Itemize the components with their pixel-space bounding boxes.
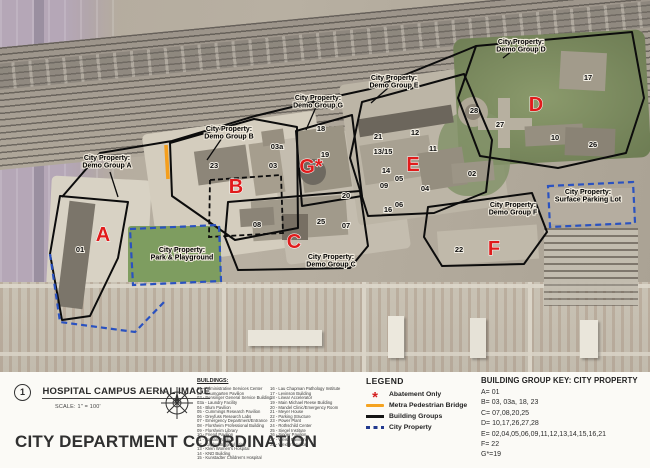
group-key-entry: G*=19 [481, 450, 646, 460]
building-groups-line-icon [366, 415, 384, 418]
drawing-number-bubble: 1 [14, 384, 31, 401]
city-property-area-label: City Property:Demo Group D [496, 39, 545, 54]
building-number-label: 27 [496, 120, 504, 129]
building-number-label: 07 [342, 221, 350, 230]
building-number-label: 20 [342, 191, 350, 200]
building-number-label: 03 [269, 161, 277, 170]
building-group-key: BUILDING GROUP KEY: CITY PROPERTY A= 01B… [481, 376, 646, 461]
legend-item: City Property [366, 422, 476, 433]
buildings-heading: BUILDINGS: [197, 378, 363, 384]
group-letter-label: G* [299, 156, 323, 178]
group-key-heading: BUILDING GROUP KEY: CITY PROPERTY [481, 376, 646, 385]
group-letter-label: F [488, 238, 500, 260]
building-number-label: 28 [470, 106, 478, 115]
building-number-label: 05 [395, 174, 403, 183]
group-letter-label: D [529, 94, 543, 116]
city-property-area-label: City Property:Demo Group E [369, 75, 418, 90]
legend-item: Metra Pedestrian Bridge [366, 400, 476, 411]
drawing-sheet: City Property:Demo Group ACity Property:… [0, 0, 650, 468]
buildings-column-2: 16 - Lau Chapman Pathology Institute17 -… [270, 387, 363, 461]
building-number-label: 12 [411, 128, 419, 137]
group-letter-label: A [96, 224, 110, 246]
metra-pedestrian-bridge-line [166, 145, 168, 179]
legend-item-label: City Property [389, 424, 432, 431]
legend-item-label: Abatement Only [389, 391, 441, 398]
building-number-label: 09 [380, 181, 388, 190]
aerial-map: City Property:Demo Group ACity Property:… [0, 0, 650, 372]
building-number-label: 11 [429, 144, 437, 153]
group-letter-label: E [406, 154, 419, 176]
building-number-label: 25 [317, 217, 325, 226]
building-number-label: 01 [76, 245, 84, 254]
group-key-entry: C= 07,08,20,25 [481, 409, 646, 419]
building-number-label: 19 [321, 150, 329, 159]
group-key-entry: F= 22 [481, 440, 646, 450]
legend-heading: LEGEND [366, 376, 476, 386]
building-number-label: 26 [589, 140, 597, 149]
building-number-label: 23 [210, 161, 218, 170]
group-letter-label: B [229, 176, 243, 198]
group-key-entry: E= 02,04,05,06,09,11,12,13,14,15,16,21 [481, 430, 646, 440]
building-footprints [57, 51, 634, 309]
building-number-label: 22 [455, 245, 463, 254]
building-number-label: 14 [382, 166, 391, 175]
city-property-area-label: City Property:Demo Group G [293, 95, 343, 110]
title-block: 1 HOSPITAL CAMPUS AERIAL IMAGE SCALE: 1"… [0, 372, 650, 468]
north-arrow-icon: N [150, 382, 196, 424]
building-number-label: 21 [374, 132, 382, 141]
building-list-item: 28 - Wexler Pavilion [270, 443, 363, 448]
abatement-asterisk-icon: * [372, 395, 378, 401]
building-number-label: 18 [317, 124, 325, 133]
group-key-entries: A= 01B= 03, 03a, 18, 23C= 07,08,20,25D= … [481, 388, 646, 461]
building-number-label: 02 [468, 169, 476, 178]
city-property-dash-icon [366, 426, 384, 429]
city-property-area-label: City Property:Demo Group B [204, 126, 253, 141]
building-number-label: 16 [384, 205, 392, 214]
city-property-area-label: City Property:Demo Group A [82, 155, 131, 170]
legend-items: *Abatement OnlyMetra Pedestrian BridgeBu… [366, 389, 476, 433]
buildings-index: BUILDINGS: 01 - Administrative Services … [197, 378, 363, 461]
group-letter-label: C [287, 231, 301, 253]
group-d-boundary [458, 32, 644, 168]
city-property-area-label: City Property:Park & Playground [151, 247, 214, 262]
group-key-entry: D= 10,17,26,27,28 [481, 419, 646, 429]
building-number-label: 08 [253, 220, 261, 229]
legend-item: *Abatement Only [366, 389, 476, 400]
legend-item-label: Metra Pedestrian Bridge [389, 402, 467, 409]
building-number-label: 17 [584, 73, 592, 82]
legend-item: Building Groups [366, 411, 476, 422]
city-property-area-label: City Property:Demo Group C [306, 254, 355, 269]
building-list-item: 15 - Kunstadter Children's Hospital [197, 456, 263, 461]
building-number-label: 10 [551, 133, 559, 142]
group-key-entry: A= 01 [481, 388, 646, 398]
city-property-area-label: City Property:Demo Group F [489, 202, 538, 217]
legend-item-label: Building Groups [389, 413, 442, 420]
building-number-label: 13/15 [374, 147, 393, 156]
building-number-label: 04 [421, 184, 430, 193]
legend: LEGEND *Abatement OnlyMetra Pedestrian B… [366, 376, 476, 433]
north-label: N [160, 389, 165, 396]
buildings-column-1: 01 - Administrative Services Center02 - … [197, 387, 263, 461]
building-number-label: 06 [395, 200, 403, 209]
building-number-label: 03a [271, 142, 284, 151]
group-key-entry: B= 03, 03a, 18, 23 [481, 398, 646, 408]
